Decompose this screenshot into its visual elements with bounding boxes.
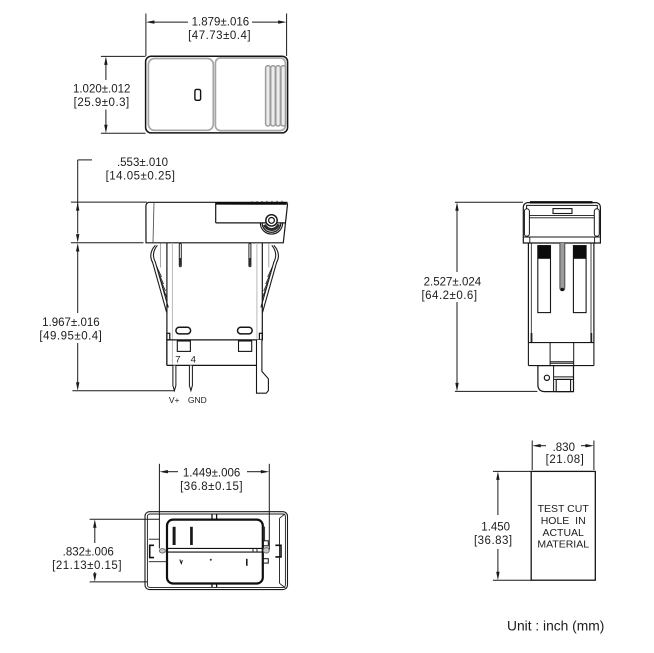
svg-text:[47.73±0.4]: [47.73±0.4]	[188, 30, 251, 42]
svg-text:1.449±.006: 1.449±.006	[183, 467, 240, 479]
svg-text:ACTUAL: ACTUAL	[542, 527, 584, 539]
svg-text:[21.13±0.15]: [21.13±0.15]	[52, 560, 122, 572]
svg-text:Unit : inch (mm): Unit : inch (mm)	[507, 619, 604, 634]
svg-text:[64.2±0.6]: [64.2±0.6]	[421, 290, 477, 302]
svg-text:.832±.006: .832±.006	[63, 547, 114, 559]
svg-text:[14.05±0.25]: [14.05±0.25]	[106, 170, 176, 182]
svg-text:[36.8±0.15]: [36.8±0.15]	[180, 481, 243, 493]
svg-text:.830: .830	[553, 442, 575, 454]
svg-text:1.020±.012: 1.020±.012	[73, 83, 130, 95]
svg-text:7: 7	[175, 354, 180, 365]
svg-text:[21.08]: [21.08]	[546, 454, 585, 466]
svg-text:.553±.010: .553±.010	[117, 157, 168, 169]
svg-text:[25.9±0.3]: [25.9±0.3]	[74, 97, 130, 109]
svg-text:TEST CUT: TEST CUT	[538, 503, 590, 515]
svg-text:[49.95±0.4]: [49.95±0.4]	[39, 331, 102, 343]
svg-text:V+: V+	[169, 395, 180, 405]
svg-text:MATERIAL: MATERIAL	[537, 538, 589, 550]
svg-text:[36.83]: [36.83]	[474, 535, 513, 547]
svg-text:1.879±.016: 1.879±.016	[192, 17, 249, 29]
svg-text:GND: GND	[188, 395, 207, 405]
svg-text:1.967±.016: 1.967±.016	[42, 317, 99, 329]
svg-text:2.527±.024: 2.527±.024	[424, 276, 482, 288]
svg-text:1.450: 1.450	[481, 522, 510, 534]
svg-text:HOLE IN: HOLE IN	[541, 515, 586, 527]
svg-text:4: 4	[191, 354, 196, 365]
